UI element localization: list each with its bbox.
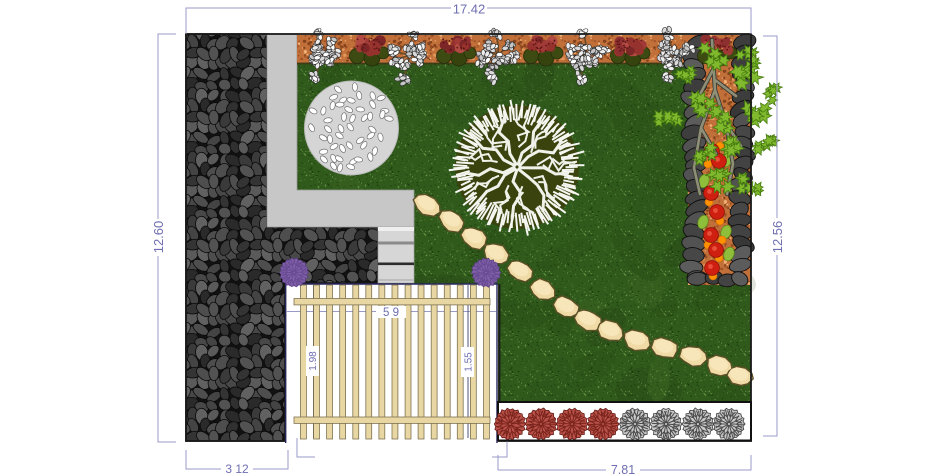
svg-text:7.81: 7.81 bbox=[611, 463, 635, 476]
svg-text:3 12: 3 12 bbox=[225, 462, 249, 476]
svg-text:12.60: 12.60 bbox=[151, 221, 166, 254]
svg-text:5 9: 5 9 bbox=[383, 307, 399, 319]
svg-text:17.42: 17.42 bbox=[453, 2, 486, 17]
svg-text:12.56: 12.56 bbox=[770, 221, 785, 254]
svg-text:1.98: 1.98 bbox=[308, 351, 319, 371]
svg-text:1.55: 1.55 bbox=[464, 352, 475, 372]
